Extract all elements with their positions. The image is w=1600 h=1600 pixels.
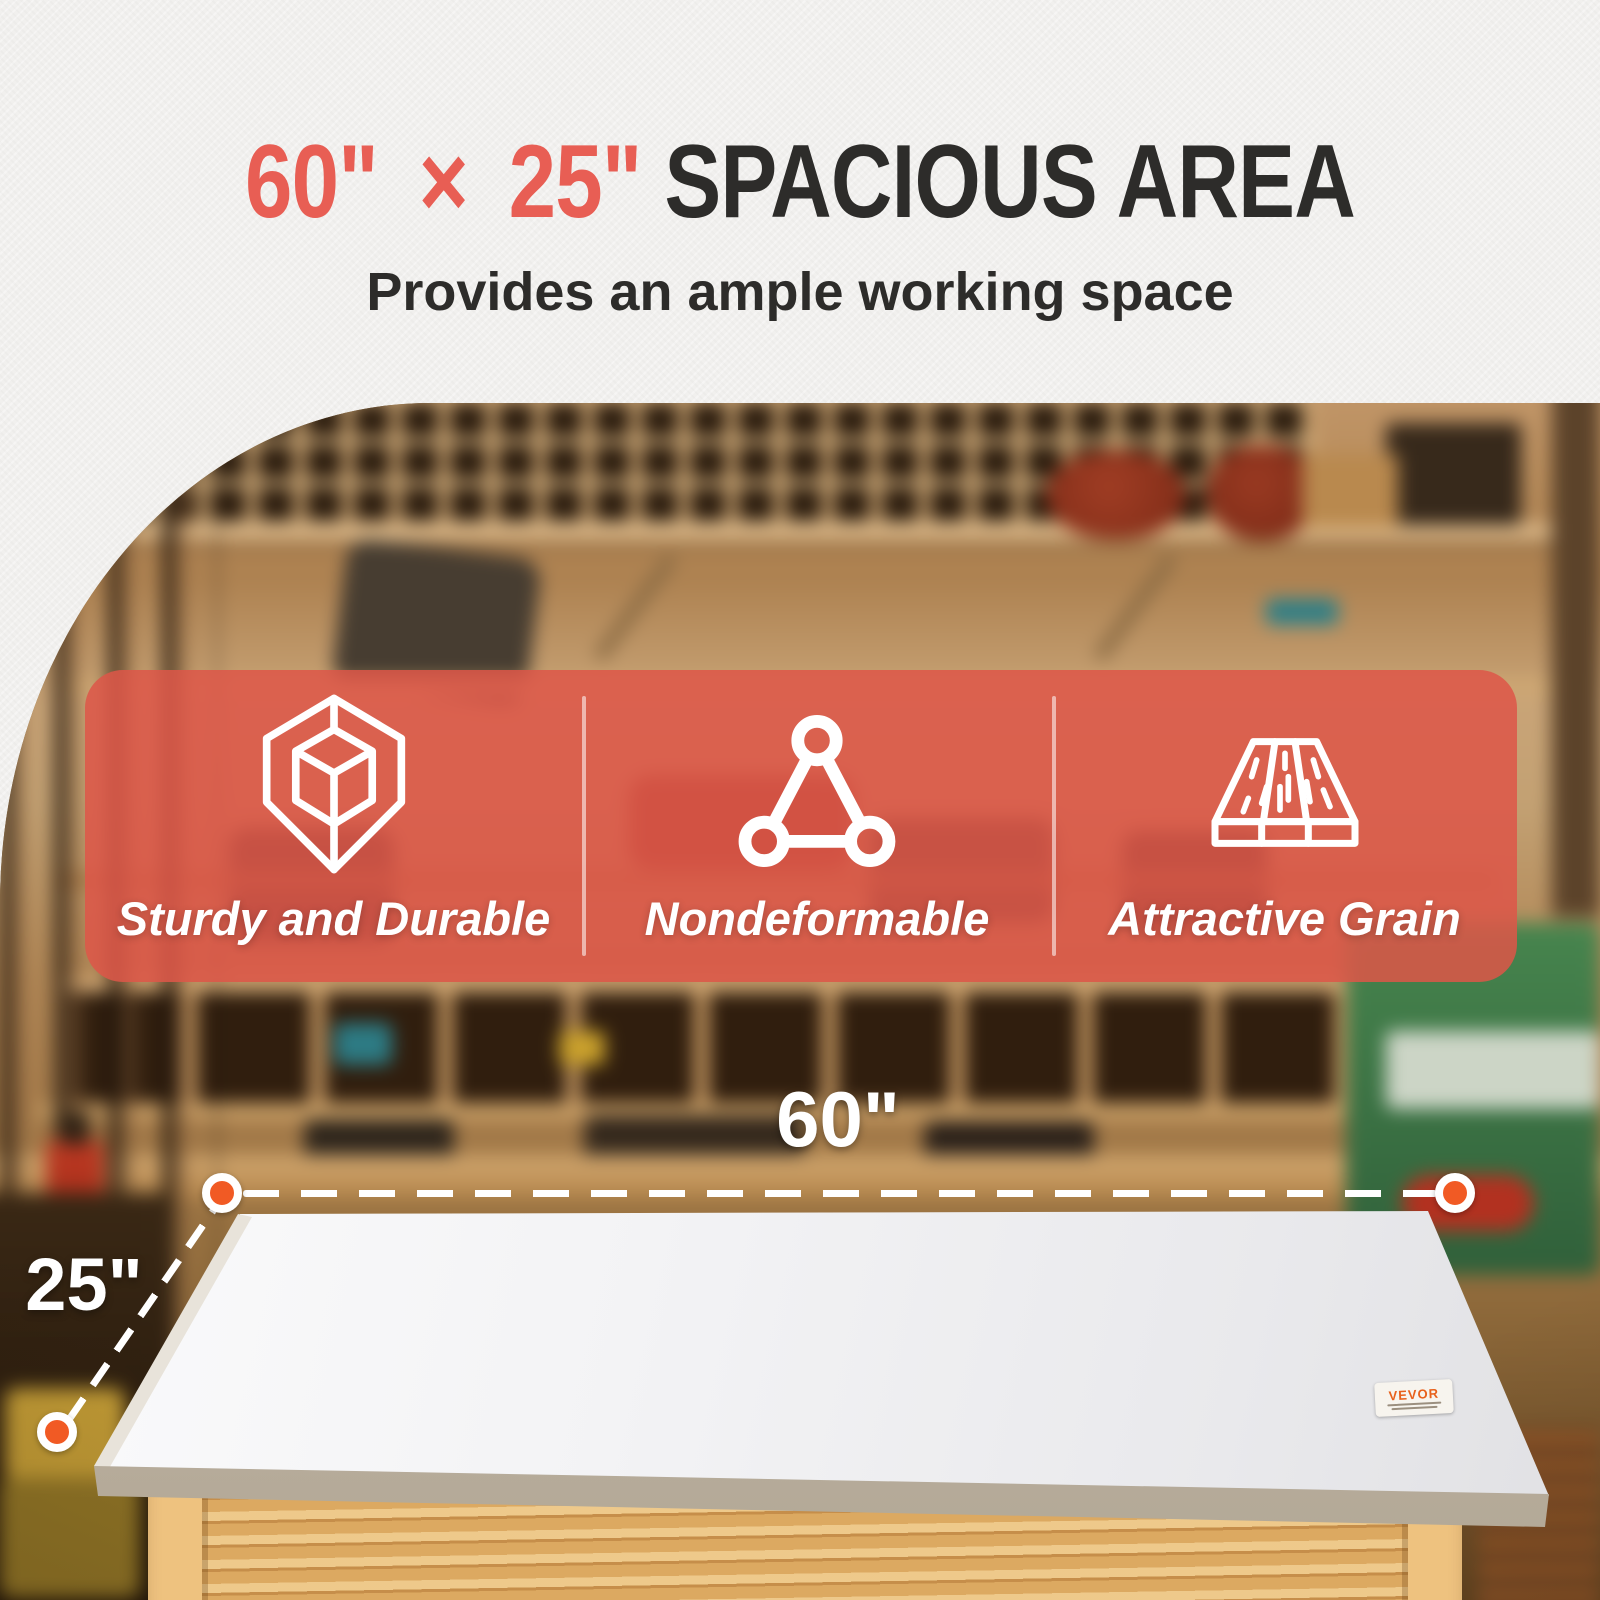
cube-wireframe-icon — [243, 693, 425, 875]
wood-plank-icon — [1201, 725, 1369, 875]
photo-dark-box — [1386, 423, 1521, 525]
workshop-photo: Sturdy and Durable Nondeformable — [0, 403, 1600, 1600]
photo-extinguisher-valve — [60, 1111, 90, 1145]
photo-red-drum — [1046, 451, 1186, 539]
photo-tan-box — [1302, 455, 1398, 527]
photo-teal-item — [1266, 599, 1338, 625]
sticker-fineprint-line — [1391, 1405, 1437, 1409]
feature-nondeformable: Nondeformable — [582, 670, 1052, 982]
photo-machine-panel — [1386, 1031, 1600, 1109]
page-subtitle: Provides an ample working space — [0, 261, 1600, 323]
photo-yellow-item — [559, 1031, 605, 1065]
feature-label: Sturdy and Durable — [117, 891, 551, 946]
feature-label: Attractive Grain — [1108, 891, 1461, 946]
title-rest: SPACIOUS AREA — [641, 124, 1354, 240]
feature-banner: Sturdy and Durable Nondeformable — [85, 670, 1517, 982]
photo-dark-column — [1552, 403, 1600, 917]
page-title: 60" × 25" SPACIOUS AREA — [144, 128, 1456, 237]
triangle-nodes-icon — [737, 715, 897, 875]
photo-cubby-shelving — [54, 978, 1349, 1106]
brand-sticker: VEVOR — [1374, 1379, 1454, 1417]
infographic-canvas: 60" × 25" SPACIOUS AREA Provides an ampl… — [0, 0, 1600, 1600]
feature-grain: Attractive Grain — [1052, 670, 1517, 982]
feature-sturdy: Sturdy and Durable — [85, 670, 582, 982]
feature-label: Nondeformable — [645, 891, 990, 946]
photo-teal-item — [334, 1023, 392, 1065]
brand-logo-text: VEVOR — [1388, 1386, 1439, 1402]
title-dimensions: 60" × 25" — [245, 124, 641, 240]
header: 60" × 25" SPACIOUS AREA Provides an ampl… — [0, 128, 1600, 323]
